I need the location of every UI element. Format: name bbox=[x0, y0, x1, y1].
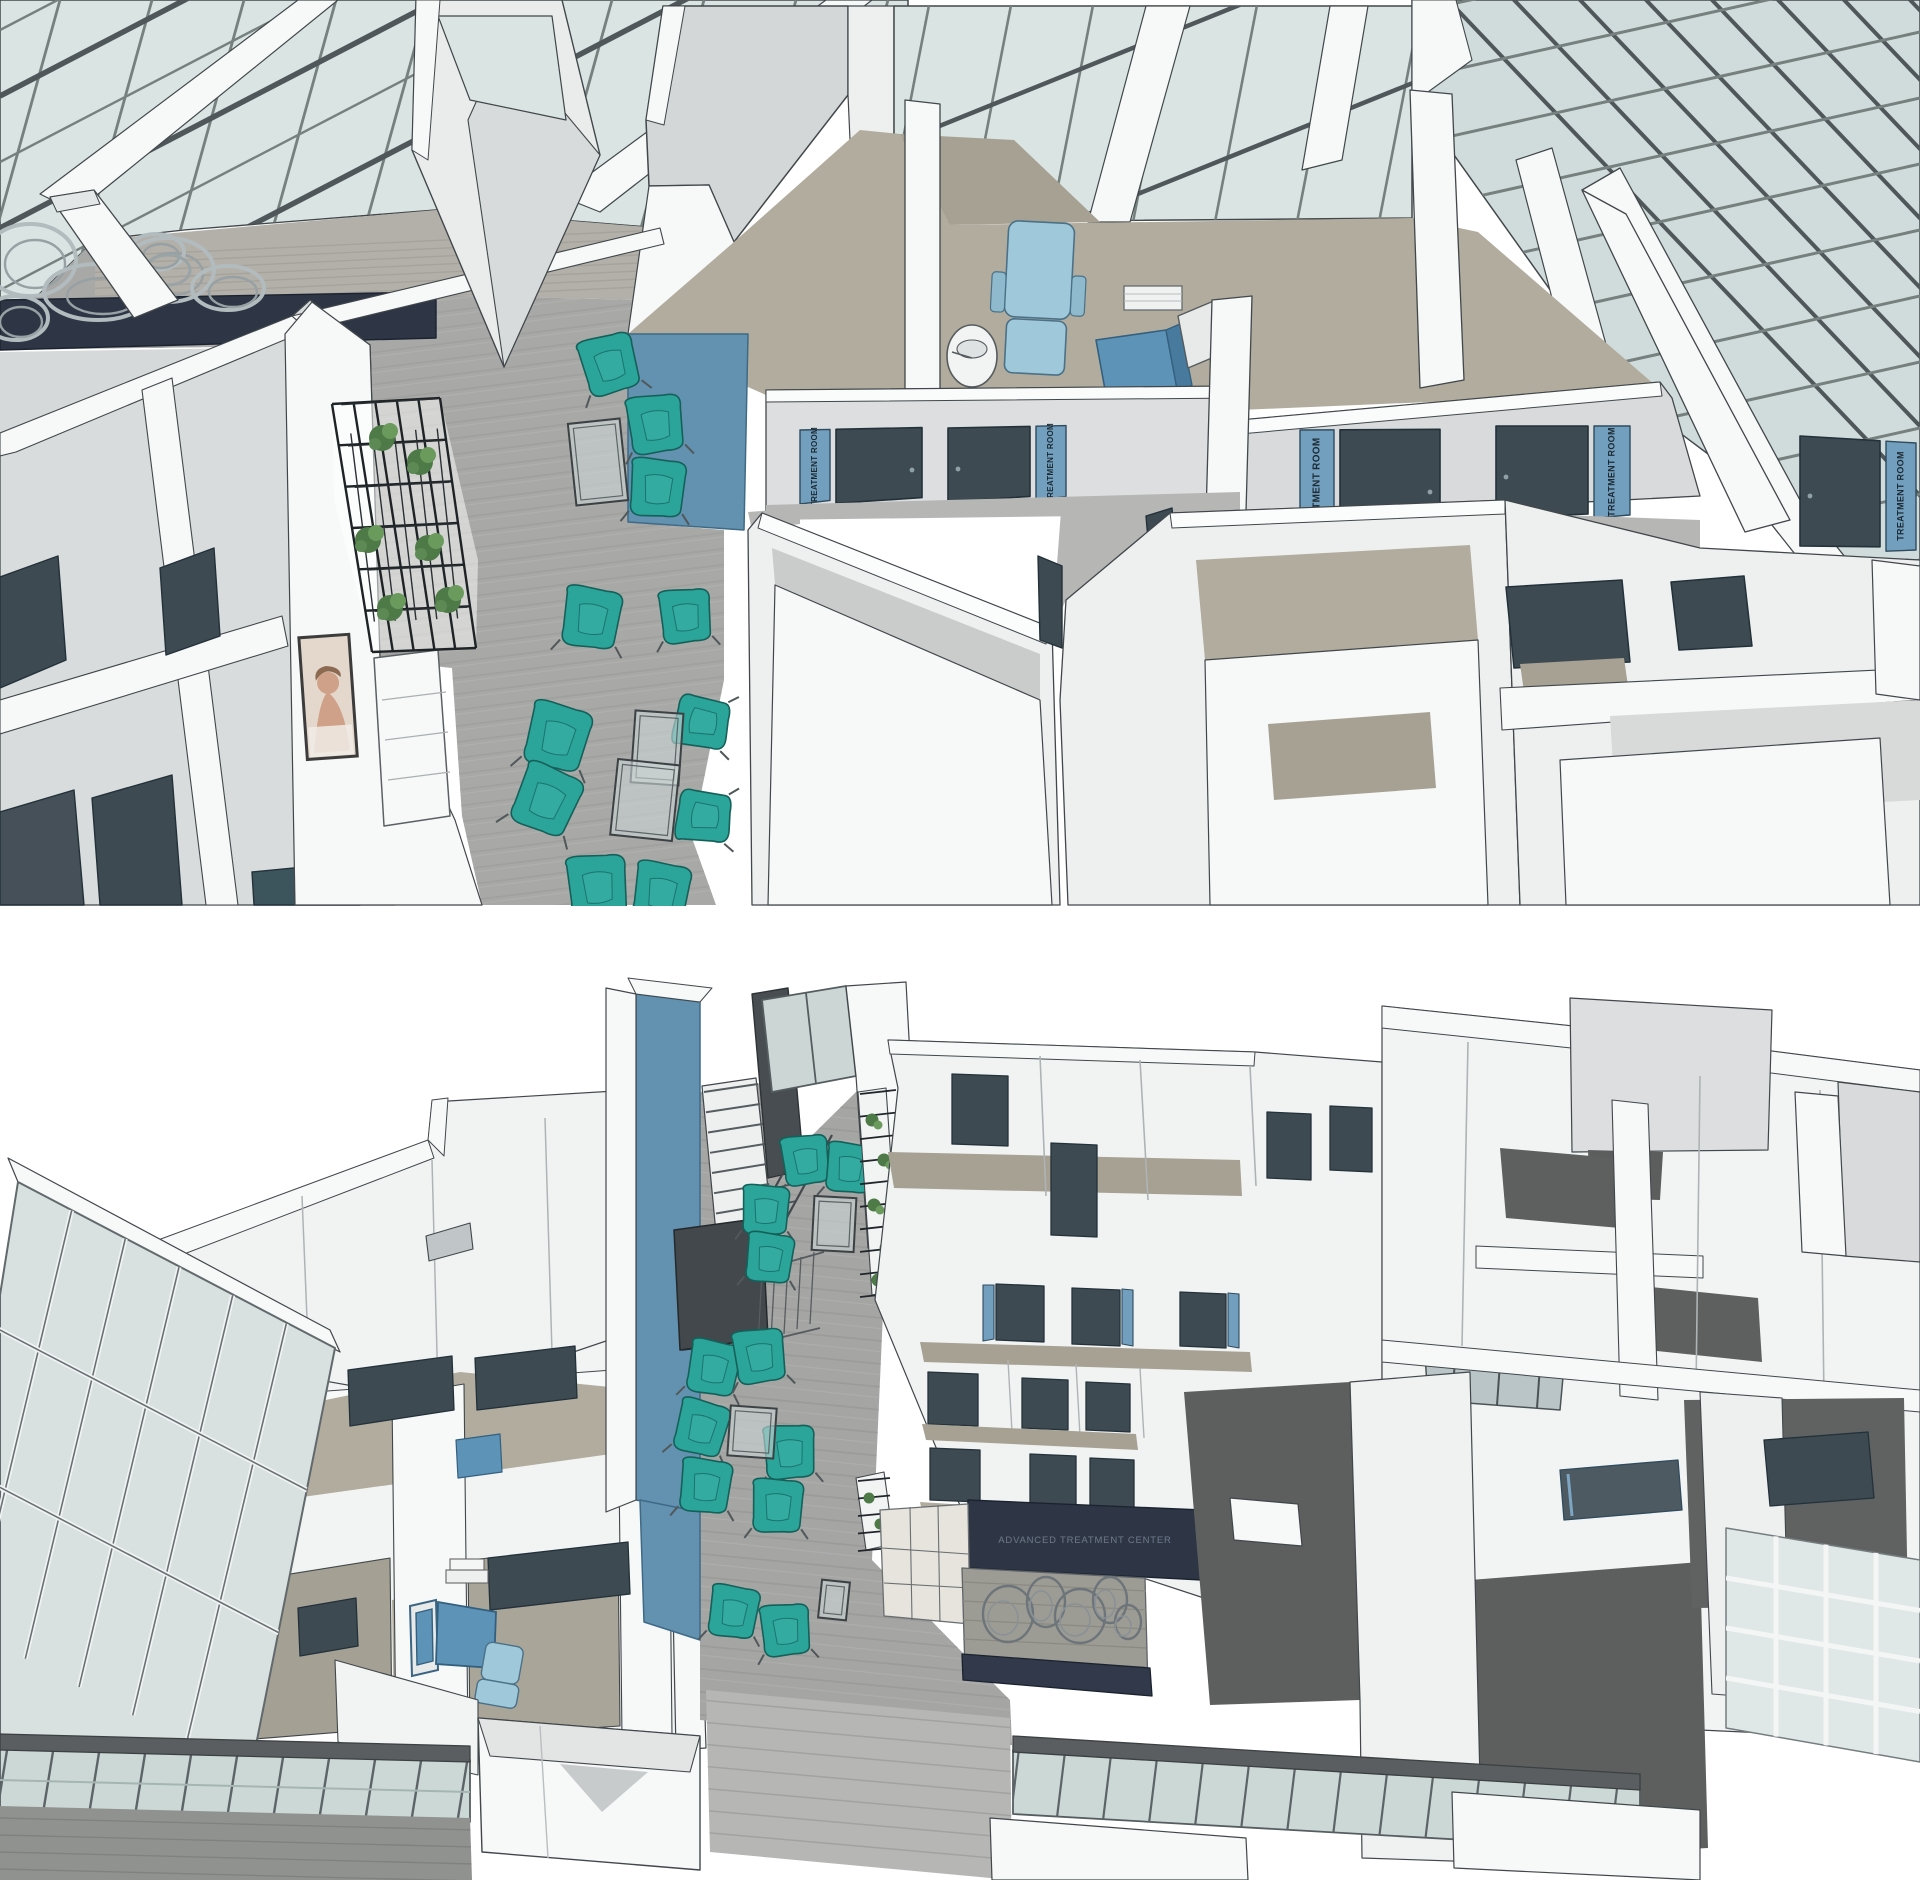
svg-text:TREATMENT ROOM: TREATMENT ROOM bbox=[1046, 423, 1055, 503]
svg-text:TREATMENT ROOM: TREATMENT ROOM bbox=[810, 427, 819, 507]
svg-text:ADVANCED TREATMENT CENTER: ADVANCED TREATMENT CENTER bbox=[998, 1535, 1171, 1546]
svg-text:TREATMENT ROOM: TREATMENT ROOM bbox=[1606, 427, 1616, 517]
svg-text:TREATMENT ROOM: TREATMENT ROOM bbox=[1895, 451, 1905, 541]
